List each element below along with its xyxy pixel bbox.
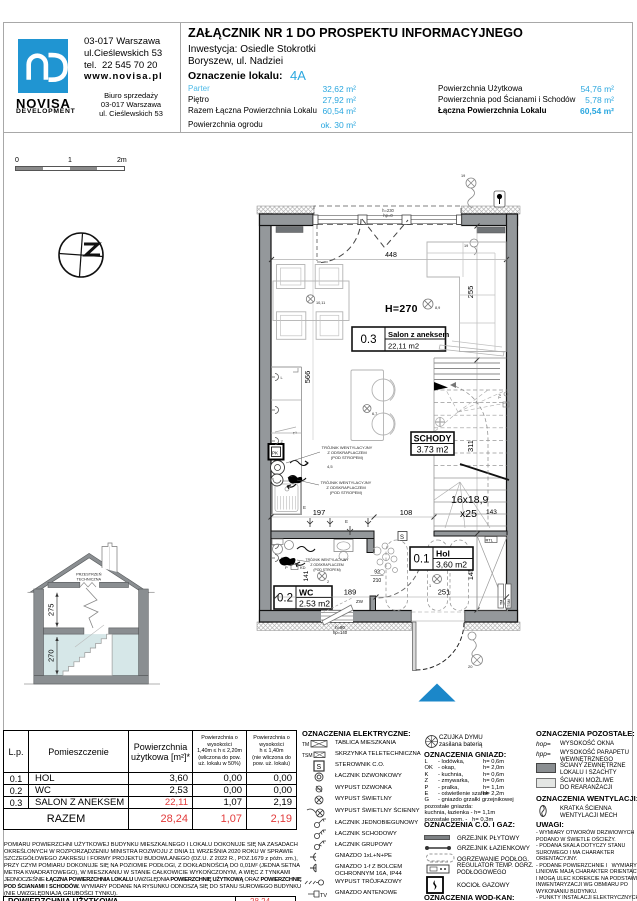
svg-text:Hol: Hol (436, 549, 450, 559)
svg-text:KD: KD (300, 565, 306, 570)
svg-text:566: 566 (303, 371, 312, 384)
svg-text:0.3: 0.3 (361, 334, 377, 346)
svg-text:255: 255 (466, 286, 475, 299)
svg-text:TSM: TSM (507, 599, 511, 607)
svg-text:WC: WC (299, 588, 313, 598)
svg-text:TSM: TSM (302, 753, 313, 759)
svg-text:141: 141 (303, 570, 310, 581)
svg-text:197: 197 (313, 508, 326, 517)
svg-text:(POD STROPEM): (POD STROPEM) (313, 568, 340, 572)
svg-text:275: 275 (47, 604, 56, 617)
svg-text:SCHODY: SCHODY (414, 434, 452, 444)
svg-text:448: 448 (385, 252, 397, 259)
svg-text:92: 92 (374, 570, 380, 576)
svg-text:4,5: 4,5 (327, 464, 333, 469)
svg-text:19: 19 (461, 174, 465, 178)
svg-text:22,11 m2: 22,11 m2 (388, 342, 419, 351)
svg-text:P: P (285, 565, 288, 570)
svg-text:TV: TV (497, 394, 502, 399)
svg-text:270: 270 (47, 649, 56, 662)
svg-text:143: 143 (486, 509, 497, 516)
svg-text:TECHNICZNA: TECHNICZNA (77, 577, 102, 581)
svg-text:0.2: 0.2 (277, 593, 293, 605)
svg-text:PK: PK (272, 451, 278, 456)
svg-text:0.1: 0.1 (414, 554, 430, 566)
svg-text:1: 1 (429, 584, 431, 588)
svg-text:Z ODSKRAPLACZEM: Z ODSKRAPLACZEM (310, 563, 344, 567)
svg-text:H=270: H=270 (385, 303, 418, 315)
svg-text:251: 251 (438, 588, 451, 597)
svg-text:Salon z aneksem: Salon z aneksem (388, 330, 449, 339)
svg-text:TM: TM (500, 600, 504, 605)
svg-text:108: 108 (400, 508, 413, 517)
svg-text:16x18,9: 16x18,9 (451, 494, 489, 506)
svg-text:E: E (303, 505, 306, 510)
svg-text:311: 311 (466, 440, 475, 452)
svg-text:20: 20 (468, 664, 473, 669)
svg-text:S: S (400, 535, 404, 541)
svg-text:189: 189 (344, 588, 357, 597)
svg-text:2: 2 (327, 580, 329, 584)
svg-text:hp=140: hp=140 (333, 630, 348, 635)
svg-text:hp=0: hp=0 (383, 213, 393, 218)
svg-text:RTL: RTL (486, 538, 494, 543)
svg-text:(POD STROPEM): (POD STROPEM) (330, 490, 363, 495)
svg-text:8,9: 8,9 (435, 306, 440, 310)
svg-text:210: 210 (373, 578, 382, 584)
svg-text:TV: TV (320, 893, 327, 899)
svg-text:ZW: ZW (356, 599, 364, 604)
svg-text:E: E (345, 519, 348, 524)
svg-text:2.53 m2: 2.53 m2 (299, 599, 330, 609)
svg-text:TM: TM (302, 742, 309, 748)
svg-text:L: L (281, 375, 284, 380)
svg-text:S: S (317, 764, 322, 771)
svg-text:Z: Z (292, 431, 298, 436)
svg-text:x25: x25 (460, 508, 477, 520)
svg-text:PRZESTRZEŃ: PRZESTRZEŃ (76, 573, 102, 577)
svg-text:TRÓJNIK WENTYLACYJNY: TRÓJNIK WENTYLACYJNY (306, 557, 350, 562)
svg-text:3,60 m2: 3,60 m2 (436, 560, 467, 570)
svg-text:10,11: 10,11 (316, 301, 325, 305)
svg-text:(POD STROPEM): (POD STROPEM) (331, 455, 364, 460)
svg-text:19: 19 (464, 244, 468, 248)
svg-text:3.73 m2: 3.73 m2 (417, 445, 449, 455)
